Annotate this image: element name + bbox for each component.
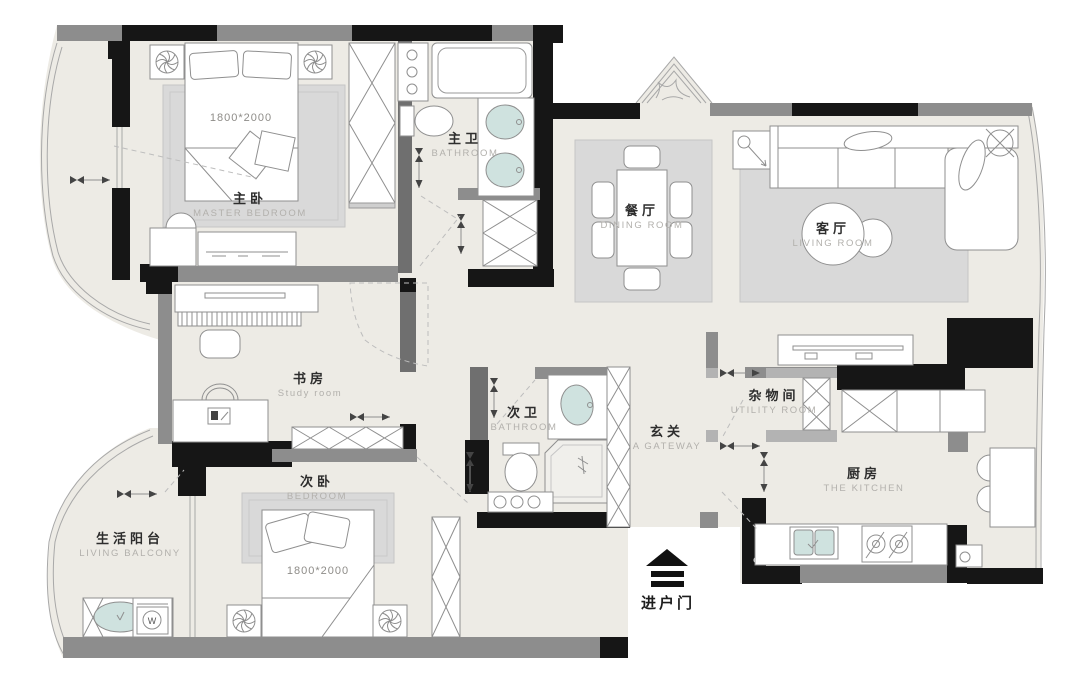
utility-cabinet [803,378,830,430]
master-nightstand-right [298,45,332,79]
entrance-arrow-icon [646,549,688,587]
master-nightstand-left [150,45,184,79]
fan-icon [233,610,255,632]
floor-plan-drawing: W [0,0,1080,686]
second-nightstand-right [373,605,407,637]
fan-icon [156,51,178,73]
second-nightstand-left [227,605,261,637]
bed-size-label: 1800*2000 [287,565,349,577]
floor-plan: W [0,0,1080,686]
balcony-fixtures: W [83,598,173,637]
entrance-label: 进户门 [641,592,695,613]
walkin-closet [483,200,537,266]
duct-shaft [607,367,630,527]
second-wardrobe [432,517,460,637]
washing-machine: W [133,598,172,637]
fan-icon [304,51,326,73]
washer-label: W [148,616,157,626]
study-sideboard [292,427,403,449]
shower [545,440,607,503]
bed-size-label: 1800*2000 [210,112,272,124]
master-wardrobe [349,43,395,208]
fan-icon [379,610,401,632]
